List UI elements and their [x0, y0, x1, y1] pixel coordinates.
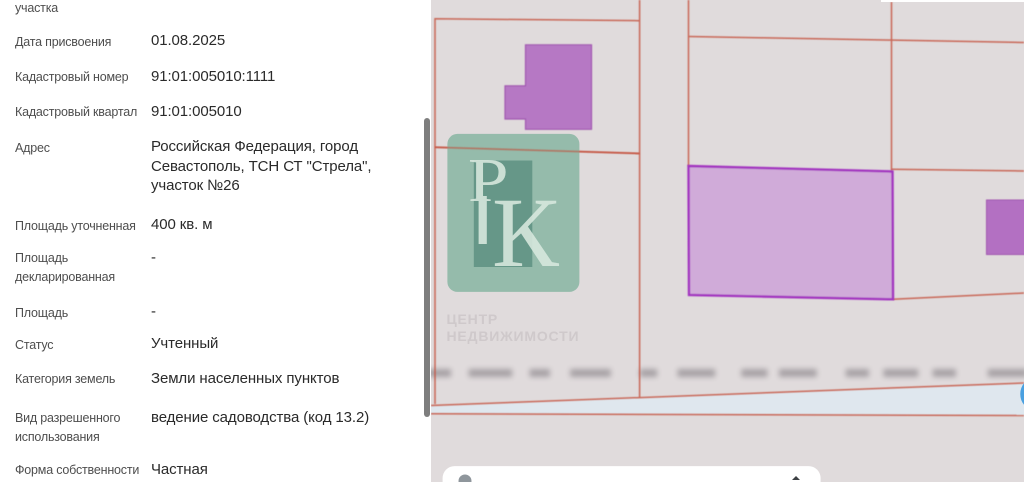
- svg-text:К: К: [492, 177, 560, 288]
- svg-text:ЦЕНТР: ЦЕНТР: [447, 311, 499, 327]
- svg-text:НЕДВИЖИМОСТИ: НЕДВИЖИМОСТИ: [447, 328, 580, 344]
